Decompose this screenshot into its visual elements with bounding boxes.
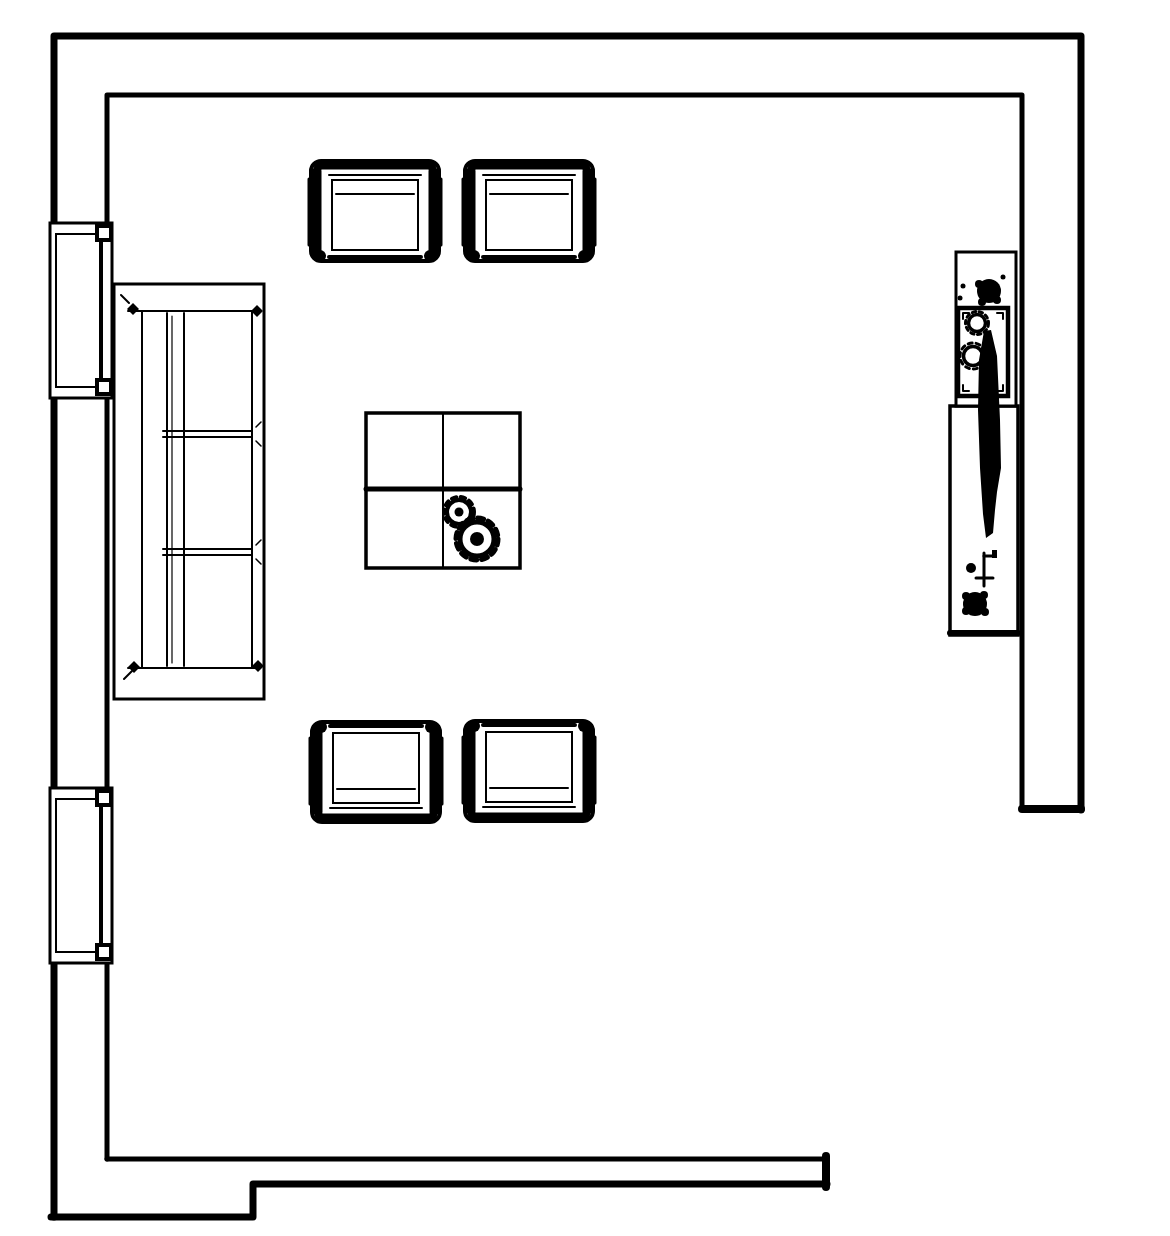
armchair-bottom-left[interactable] — [310, 721, 442, 822]
floor-plan — [0, 0, 1170, 1236]
large-plant-icon — [456, 518, 498, 560]
armchair-top-right[interactable] — [463, 161, 595, 262]
window-upper[interactable] — [50, 223, 112, 398]
sofa-outline — [114, 284, 264, 699]
armchair-top-left[interactable] — [309, 161, 441, 262]
sofa[interactable] — [114, 284, 264, 699]
armchair-bottom-right[interactable] — [463, 720, 595, 821]
window-lower[interactable] — [50, 788, 112, 963]
console-table[interactable] — [950, 252, 1018, 635]
plant-icon-bottom — [962, 591, 989, 616]
coffee-table[interactable] — [366, 413, 520, 568]
floor-plan-canvas — [0, 0, 1170, 1236]
